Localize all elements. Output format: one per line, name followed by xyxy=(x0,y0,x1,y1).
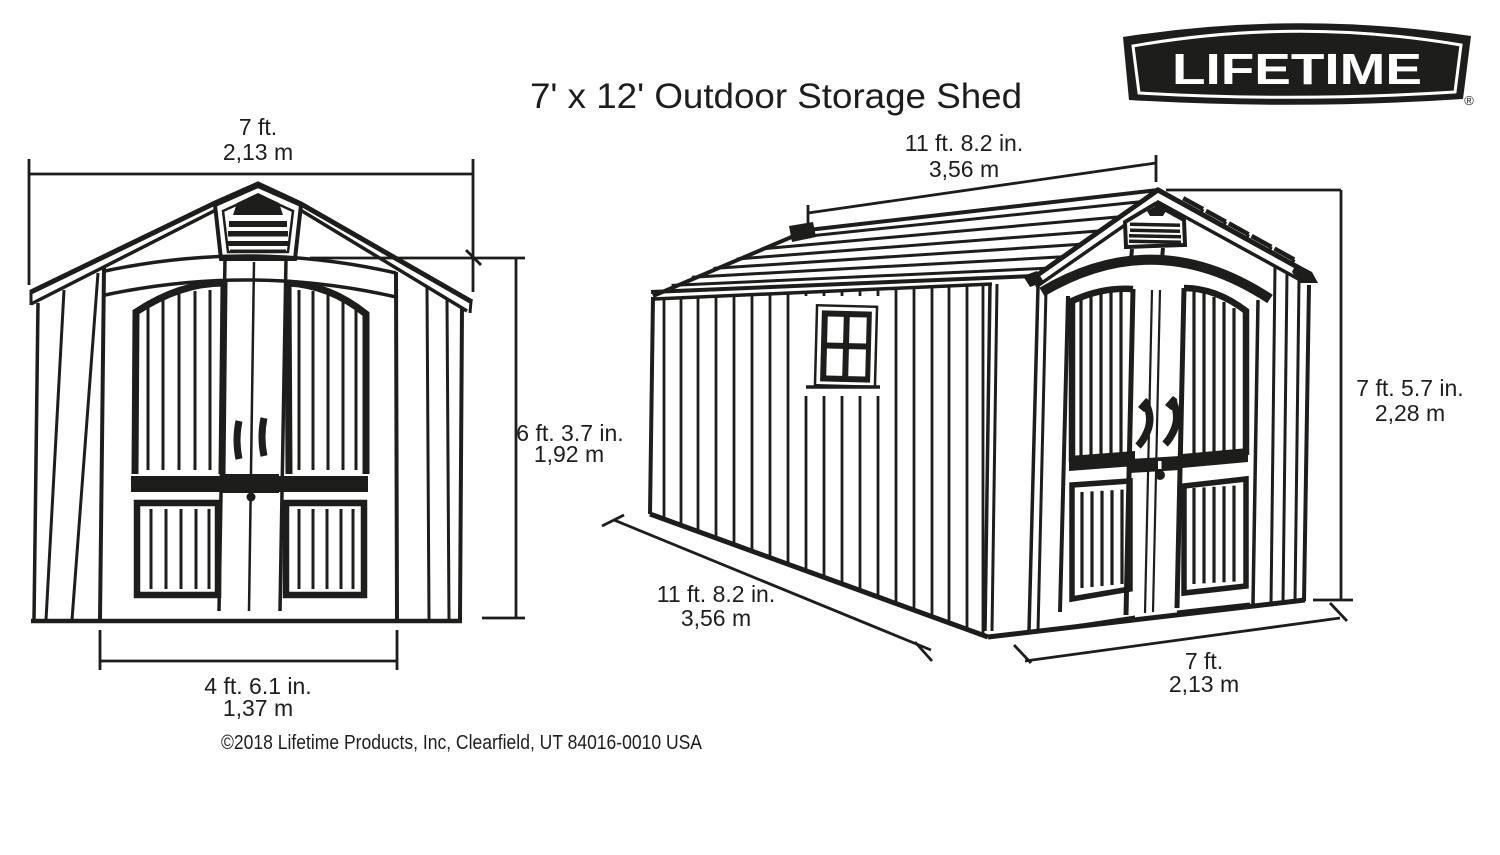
svg-text:7 ft.: 7 ft. xyxy=(239,114,277,140)
svg-text:2,13 m: 2,13 m xyxy=(1169,671,1239,697)
svg-text:7 ft. 5.7 in.: 7 ft. 5.7 in. xyxy=(1356,375,1463,401)
svg-text:2,28 m: 2,28 m xyxy=(1375,400,1445,426)
svg-text:3,56 m: 3,56 m xyxy=(929,156,999,182)
svg-text:1,37 m: 1,37 m xyxy=(223,695,293,721)
svg-text:1,92 m: 1,92 m xyxy=(534,441,604,467)
svg-text:11 ft. 8.2 in.: 11 ft. 8.2 in. xyxy=(905,130,1023,156)
svg-text:3,56 m: 3,56 m xyxy=(681,605,751,631)
svg-text:11 ft. 8.2 in.: 11 ft. 8.2 in. xyxy=(657,581,775,607)
svg-text:®: ® xyxy=(1464,93,1474,108)
svg-text:7' x 12' Outdoor Storage Shed: 7' x 12' Outdoor Storage Shed xyxy=(530,77,1022,116)
svg-text:LIFETIME: LIFETIME xyxy=(1172,45,1422,94)
svg-text:©2018 Lifetime Products, Inc,: ©2018 Lifetime Products, Inc, Clearfield… xyxy=(221,732,703,754)
svg-text:2,13 m: 2,13 m xyxy=(223,139,293,165)
